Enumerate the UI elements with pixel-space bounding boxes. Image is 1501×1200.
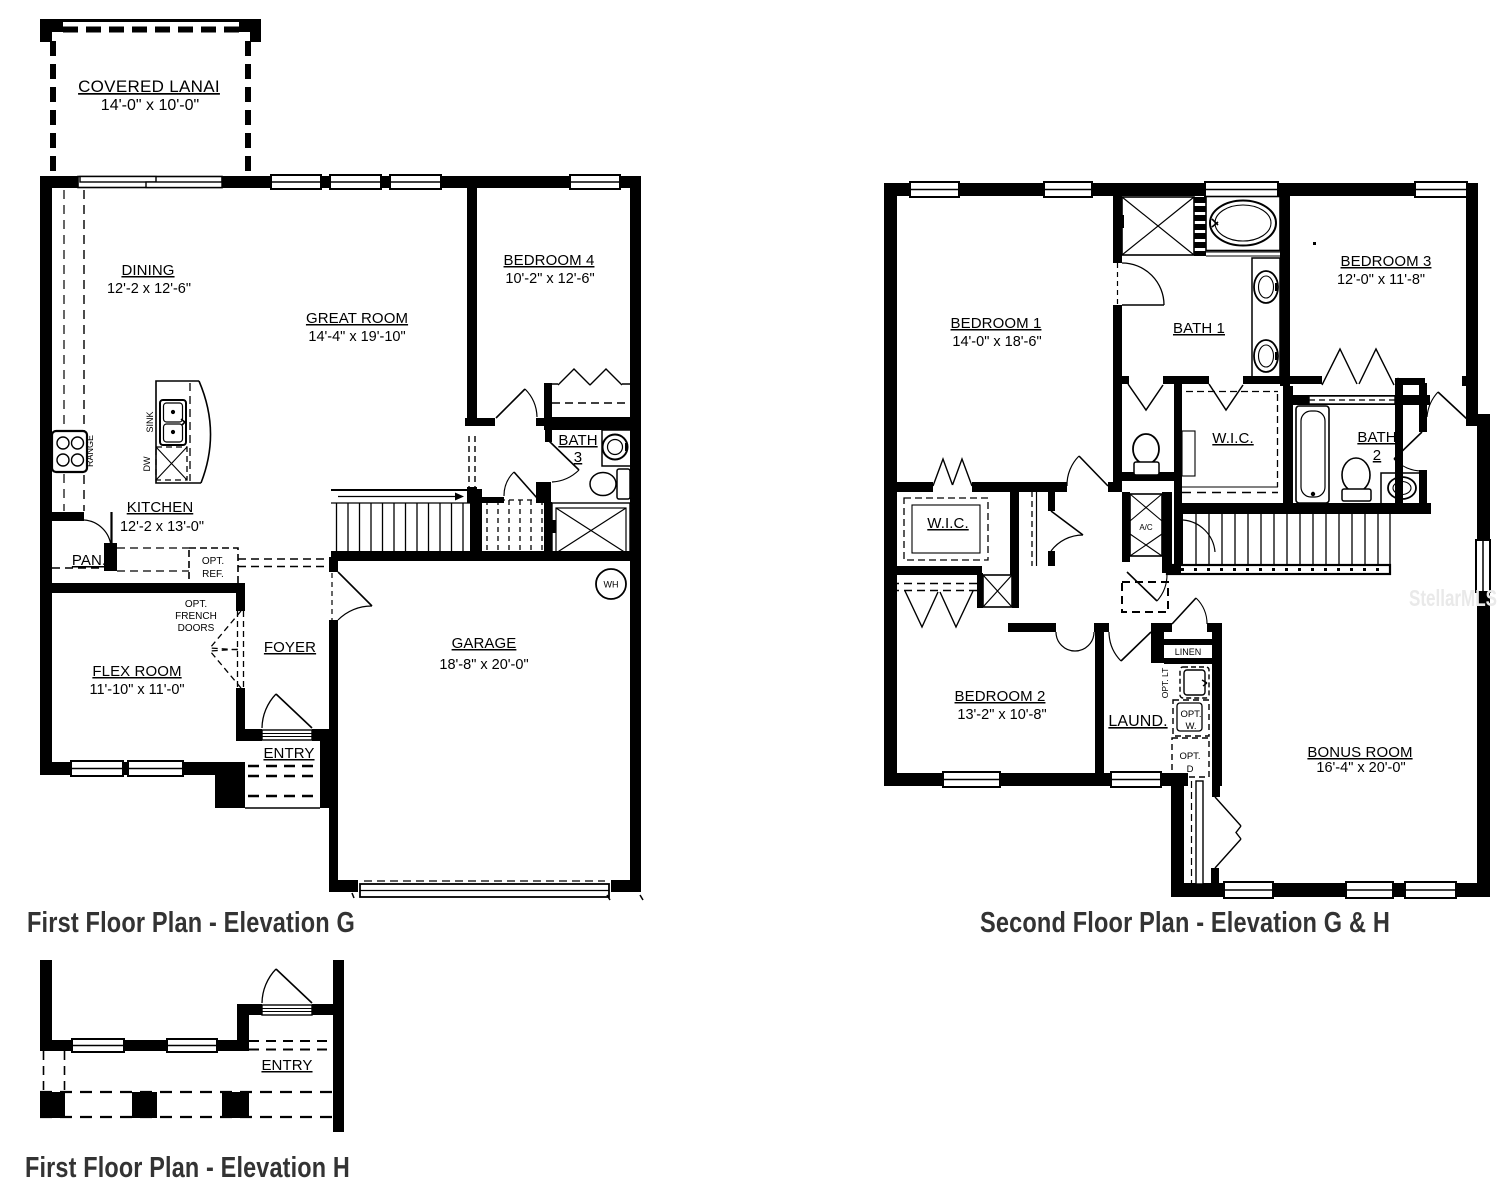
svg-text:12'-2 x 13'-0": 12'-2 x 13'-0" (120, 519, 204, 535)
svg-text:14'-0" x 10'-0": 14'-0" x 10'-0" (101, 97, 199, 114)
svg-text:LINEN: LINEN (1175, 647, 1202, 657)
svg-text:GREAT ROOM: GREAT ROOM (306, 310, 408, 327)
svg-text:W.I.C.: W.I.C. (927, 515, 968, 532)
svg-text:REF.: REF. (202, 569, 224, 580)
svg-text:FRENCH: FRENCH (175, 611, 217, 622)
svg-text:W.I.C.: W.I.C. (1212, 430, 1253, 447)
svg-text:D: D (1187, 764, 1194, 775)
svg-text:11'-10" x 11'-0": 11'-10" x 11'-0" (89, 682, 184, 698)
svg-text:First Floor Plan - Elevation H: First Floor Plan - Elevation H (25, 1152, 350, 1184)
svg-text:COVERED LANAI: COVERED LANAI (78, 77, 220, 96)
svg-text:KITCHEN: KITCHEN (127, 499, 194, 516)
svg-text:BEDROOM 2: BEDROOM 2 (955, 688, 1046, 705)
svg-text:OPT.: OPT. (1179, 751, 1200, 762)
svg-text:BATH: BATH (1357, 429, 1396, 446)
svg-text:BATH 1: BATH 1 (1173, 320, 1225, 337)
svg-text:18'-8" x 20'-0": 18'-8" x 20'-0" (439, 657, 528, 673)
svg-text:ENTRY: ENTRY (263, 745, 314, 762)
svg-text:PAN.: PAN. (72, 552, 106, 569)
svg-text:DOORS: DOORS (178, 623, 215, 634)
svg-text:LAUND.: LAUND. (1108, 713, 1167, 730)
svg-text:A/C: A/C (1139, 523, 1153, 532)
svg-text:BEDROOM 1: BEDROOM 1 (951, 315, 1042, 332)
svg-text:FOYER: FOYER (264, 639, 316, 656)
svg-text:BEDROOM 3: BEDROOM 3 (1341, 253, 1432, 270)
svg-text:12'-0" x 11'-8": 12'-0" x 11'-8" (1337, 272, 1425, 288)
svg-text:BONUS ROOM: BONUS ROOM (1307, 744, 1412, 761)
svg-text:12'-2 x 12'-6": 12'-2 x 12'-6" (107, 281, 191, 297)
svg-text:14'-4" x 19'-10": 14'-4" x 19'-10" (308, 329, 405, 345)
svg-text:SINK: SINK (145, 411, 155, 432)
svg-text:16'-4" x 20'-0": 16'-4" x 20'-0" (1316, 760, 1405, 776)
svg-text:14'-0" x 18'-6": 14'-0" x 18'-6" (952, 334, 1041, 350)
svg-text:OPT.: OPT. (185, 599, 207, 610)
svg-text:2: 2 (1373, 447, 1381, 464)
svg-text:ENTRY: ENTRY (261, 1057, 312, 1074)
svg-text:FLEX ROOM: FLEX ROOM (92, 663, 181, 680)
svg-text:WH: WH (604, 580, 619, 590)
svg-text:First Floor Plan - Elevation G: First Floor Plan - Elevation G (27, 907, 355, 939)
svg-text:DW: DW (142, 456, 152, 471)
svg-text:3: 3 (574, 449, 582, 466)
svg-text:DINING: DINING (121, 262, 174, 279)
svg-text:13'-2" x 10'-8": 13'-2" x 10'-8" (957, 707, 1046, 723)
svg-text:W.: W. (1185, 721, 1196, 732)
svg-text:OPT.: OPT. (1180, 709, 1201, 720)
svg-text:OPT. LT: OPT. LT (1160, 668, 1170, 699)
svg-text:Second Floor Plan - Elevation: Second Floor Plan - Elevation G & H (980, 907, 1390, 939)
svg-text:GARAGE: GARAGE (452, 635, 517, 652)
svg-text:StellarMLS: StellarMLS (1409, 585, 1497, 611)
svg-text:OPT.: OPT. (202, 556, 224, 567)
svg-text:BATH: BATH (558, 432, 597, 449)
svg-text:10'-2" x 12'-6": 10'-2" x 12'-6" (505, 271, 594, 287)
svg-text:RANGE: RANGE (85, 435, 95, 467)
svg-text:BEDROOM 4: BEDROOM 4 (504, 252, 595, 269)
